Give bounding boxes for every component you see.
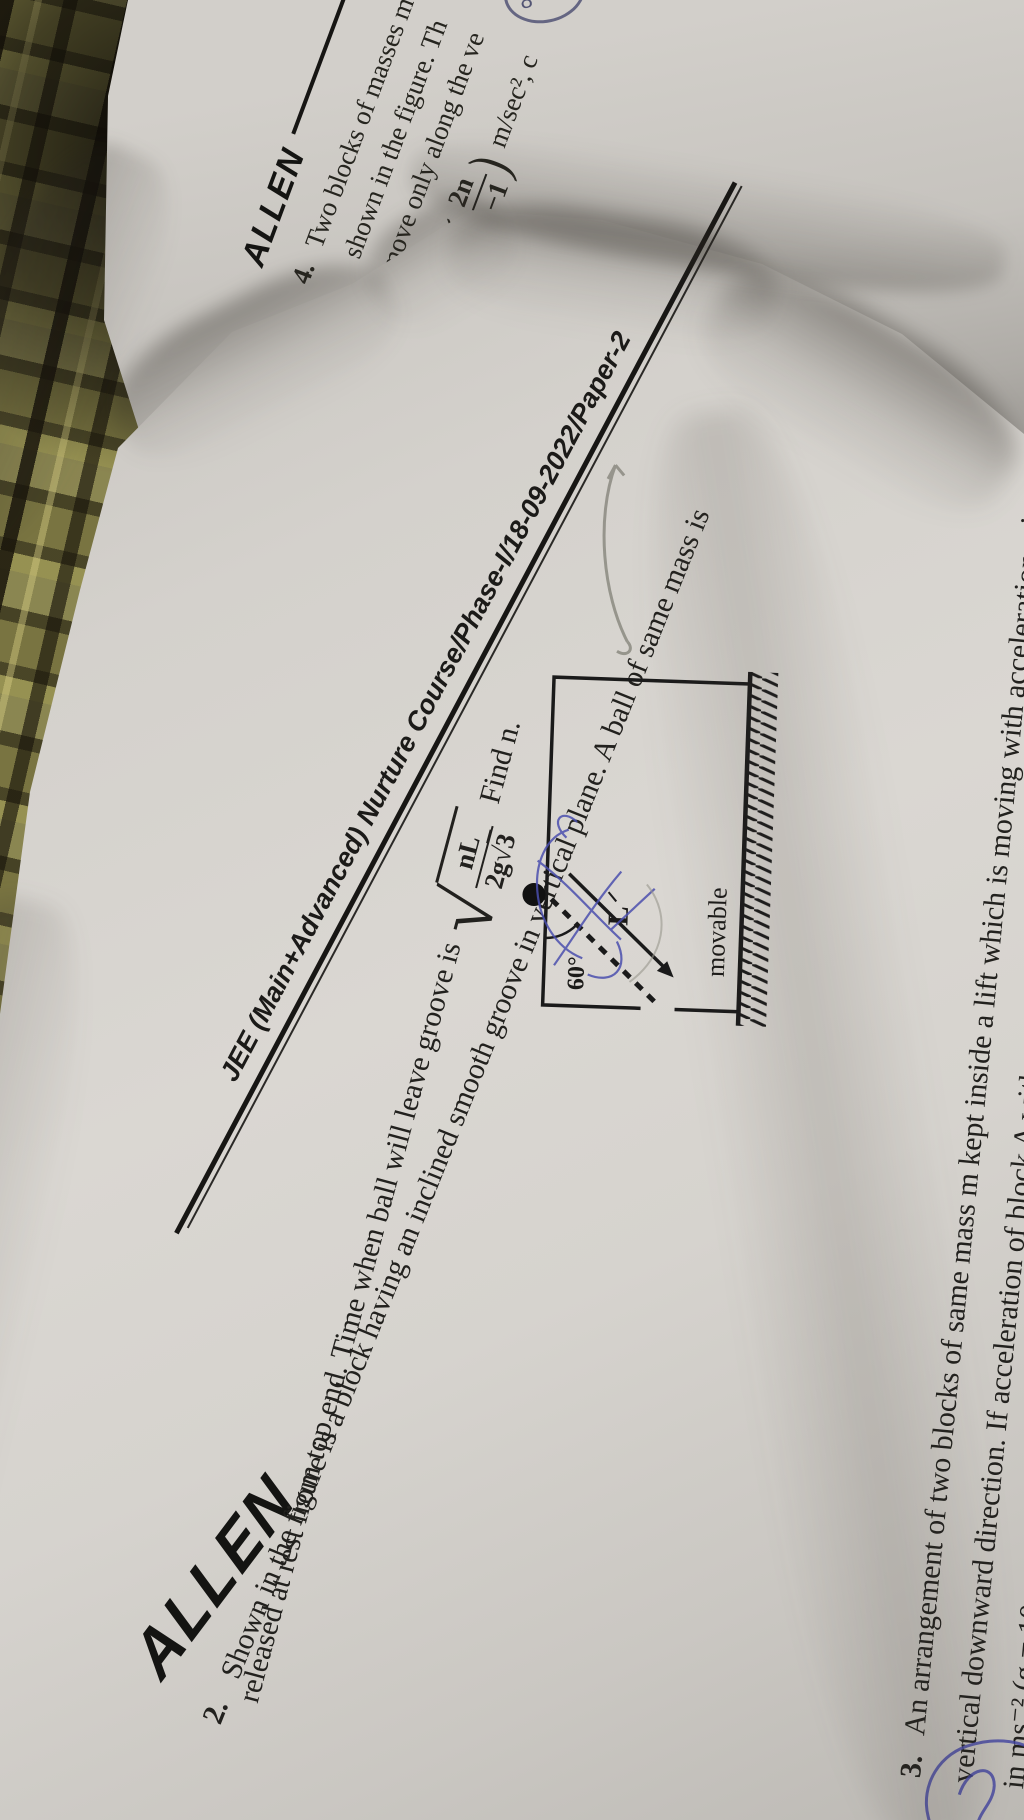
pencil-arrow-annotation (600, 465, 637, 654)
q2-figure: 60° L movable (516, 402, 795, 1031)
pen-circle-digit: 8 (517, 0, 534, 15)
figure-block-label: movable (701, 887, 733, 977)
q2-line2-post: Find n. (473, 716, 528, 807)
pencil-arrow-tail-curl (617, 641, 631, 654)
pencil-curve (629, 884, 663, 983)
pen-squiggle (955, 1768, 1006, 1820)
pencil-arrow-head (608, 465, 624, 480)
pen-scribble-loop2 (588, 940, 622, 978)
figure-length-tick (608, 892, 616, 901)
figure-canvas: 60° L movable (516, 402, 795, 1031)
pencil-arrow-shaft (600, 465, 633, 642)
figure-angle-label: 60° (563, 956, 590, 990)
figure-ball (522, 883, 546, 907)
photo-of-question-paper: ALLEN 4.Two blocks of masses m shown in … (0, 0, 1024, 1820)
